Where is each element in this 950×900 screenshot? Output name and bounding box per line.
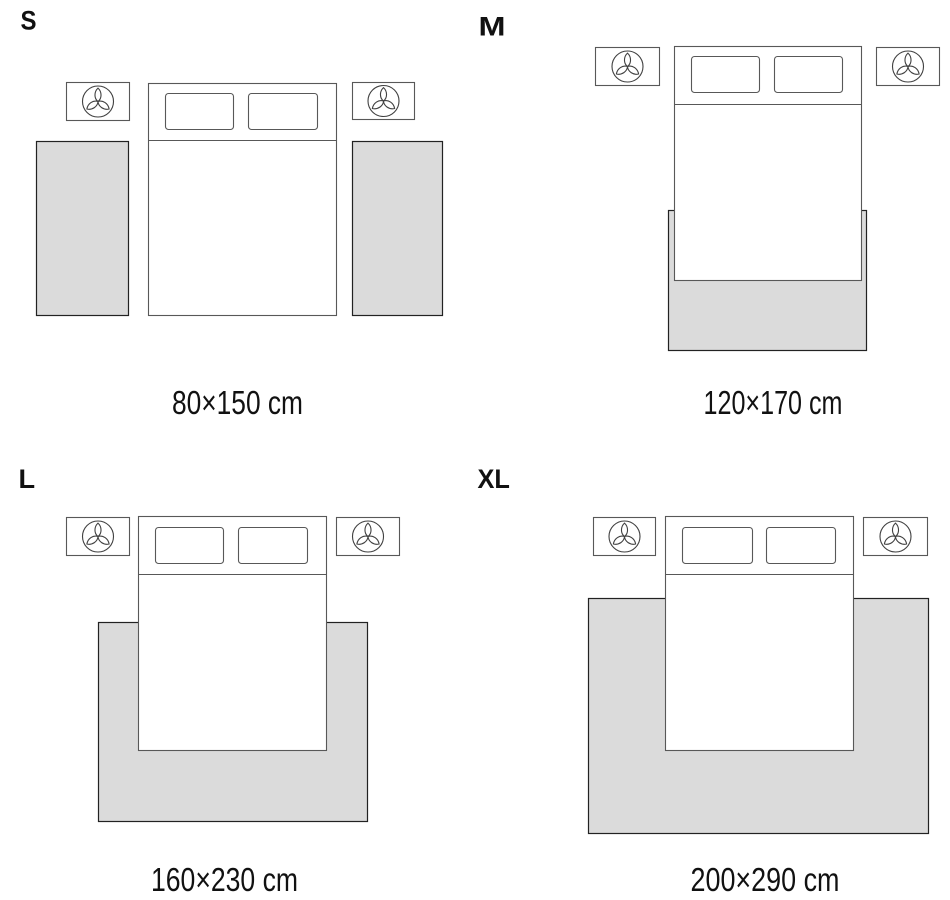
svg-text:XL: XL [478, 464, 510, 494]
svg-text:80×150 cm: 80×150 cm [172, 384, 303, 421]
svg-text:L: L [19, 464, 36, 494]
svg-text:160×230 cm: 160×230 cm [151, 861, 298, 898]
svg-text:120×170 cm: 120×170 cm [704, 384, 843, 421]
svg-text:M: M [479, 12, 506, 42]
svg-text:200×290 cm: 200×290 cm [691, 861, 840, 898]
svg-text:S: S [21, 6, 37, 36]
